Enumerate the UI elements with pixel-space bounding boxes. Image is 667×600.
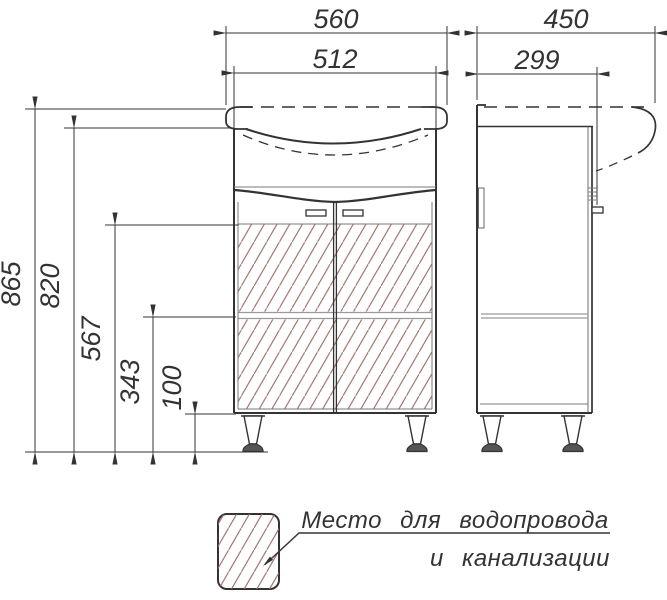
- basin-front-curve: [246, 129, 421, 144]
- legend-hatch-swatch: [218, 514, 279, 589]
- cabinet-width-dim-label: 512: [312, 44, 357, 74]
- drawing-canvas: 560 512 450 299 865 820 567 343 100: [0, 0, 667, 600]
- shelf-height-dim-label: 343: [115, 359, 145, 404]
- back-bracket: [479, 188, 485, 228]
- front-right-leg: [405, 416, 429, 452]
- side-sink-top: [477, 105, 656, 171]
- right-door-handle: [343, 210, 363, 216]
- basin-hidden-curve: [243, 135, 428, 155]
- counter-height-dim-label: 820: [35, 263, 65, 308]
- door-top-curve: [234, 190, 436, 202]
- plinth-height-dim-label: 100: [157, 365, 187, 410]
- total-depth-dim-label: 450: [543, 4, 588, 34]
- side-shelf: [481, 314, 588, 318]
- legend-text-line2: и канализации: [430, 545, 610, 572]
- side-front-leg: [480, 416, 504, 452]
- side-cabinet-body: [477, 105, 603, 413]
- front-shelf: [237, 312, 433, 320]
- hatch-top-height-dim-label: 567: [76, 315, 106, 361]
- sink-width-dim-label: 560: [313, 4, 358, 34]
- counter-overhang-hidden: [596, 156, 632, 171]
- front-view: [226, 107, 447, 452]
- side-view: [477, 105, 656, 452]
- legend-text-line1: Место для водопровода: [301, 507, 608, 534]
- counter-overhang-curve: [632, 107, 656, 153]
- front-left-leg: [241, 416, 265, 452]
- front-sink-top: [226, 107, 447, 155]
- total-height-dim-label: 865: [0, 260, 26, 306]
- left-door-handle: [306, 210, 326, 216]
- side-door-handle: [592, 207, 603, 213]
- vanity-technical-drawing: 560 512 450 299 865 820 567 343 100: [0, 0, 667, 600]
- legend: Место для водопровода и канализации: [218, 507, 610, 589]
- cabinet-depth-dim-label: 299: [513, 45, 559, 75]
- side-back-leg: [561, 416, 585, 452]
